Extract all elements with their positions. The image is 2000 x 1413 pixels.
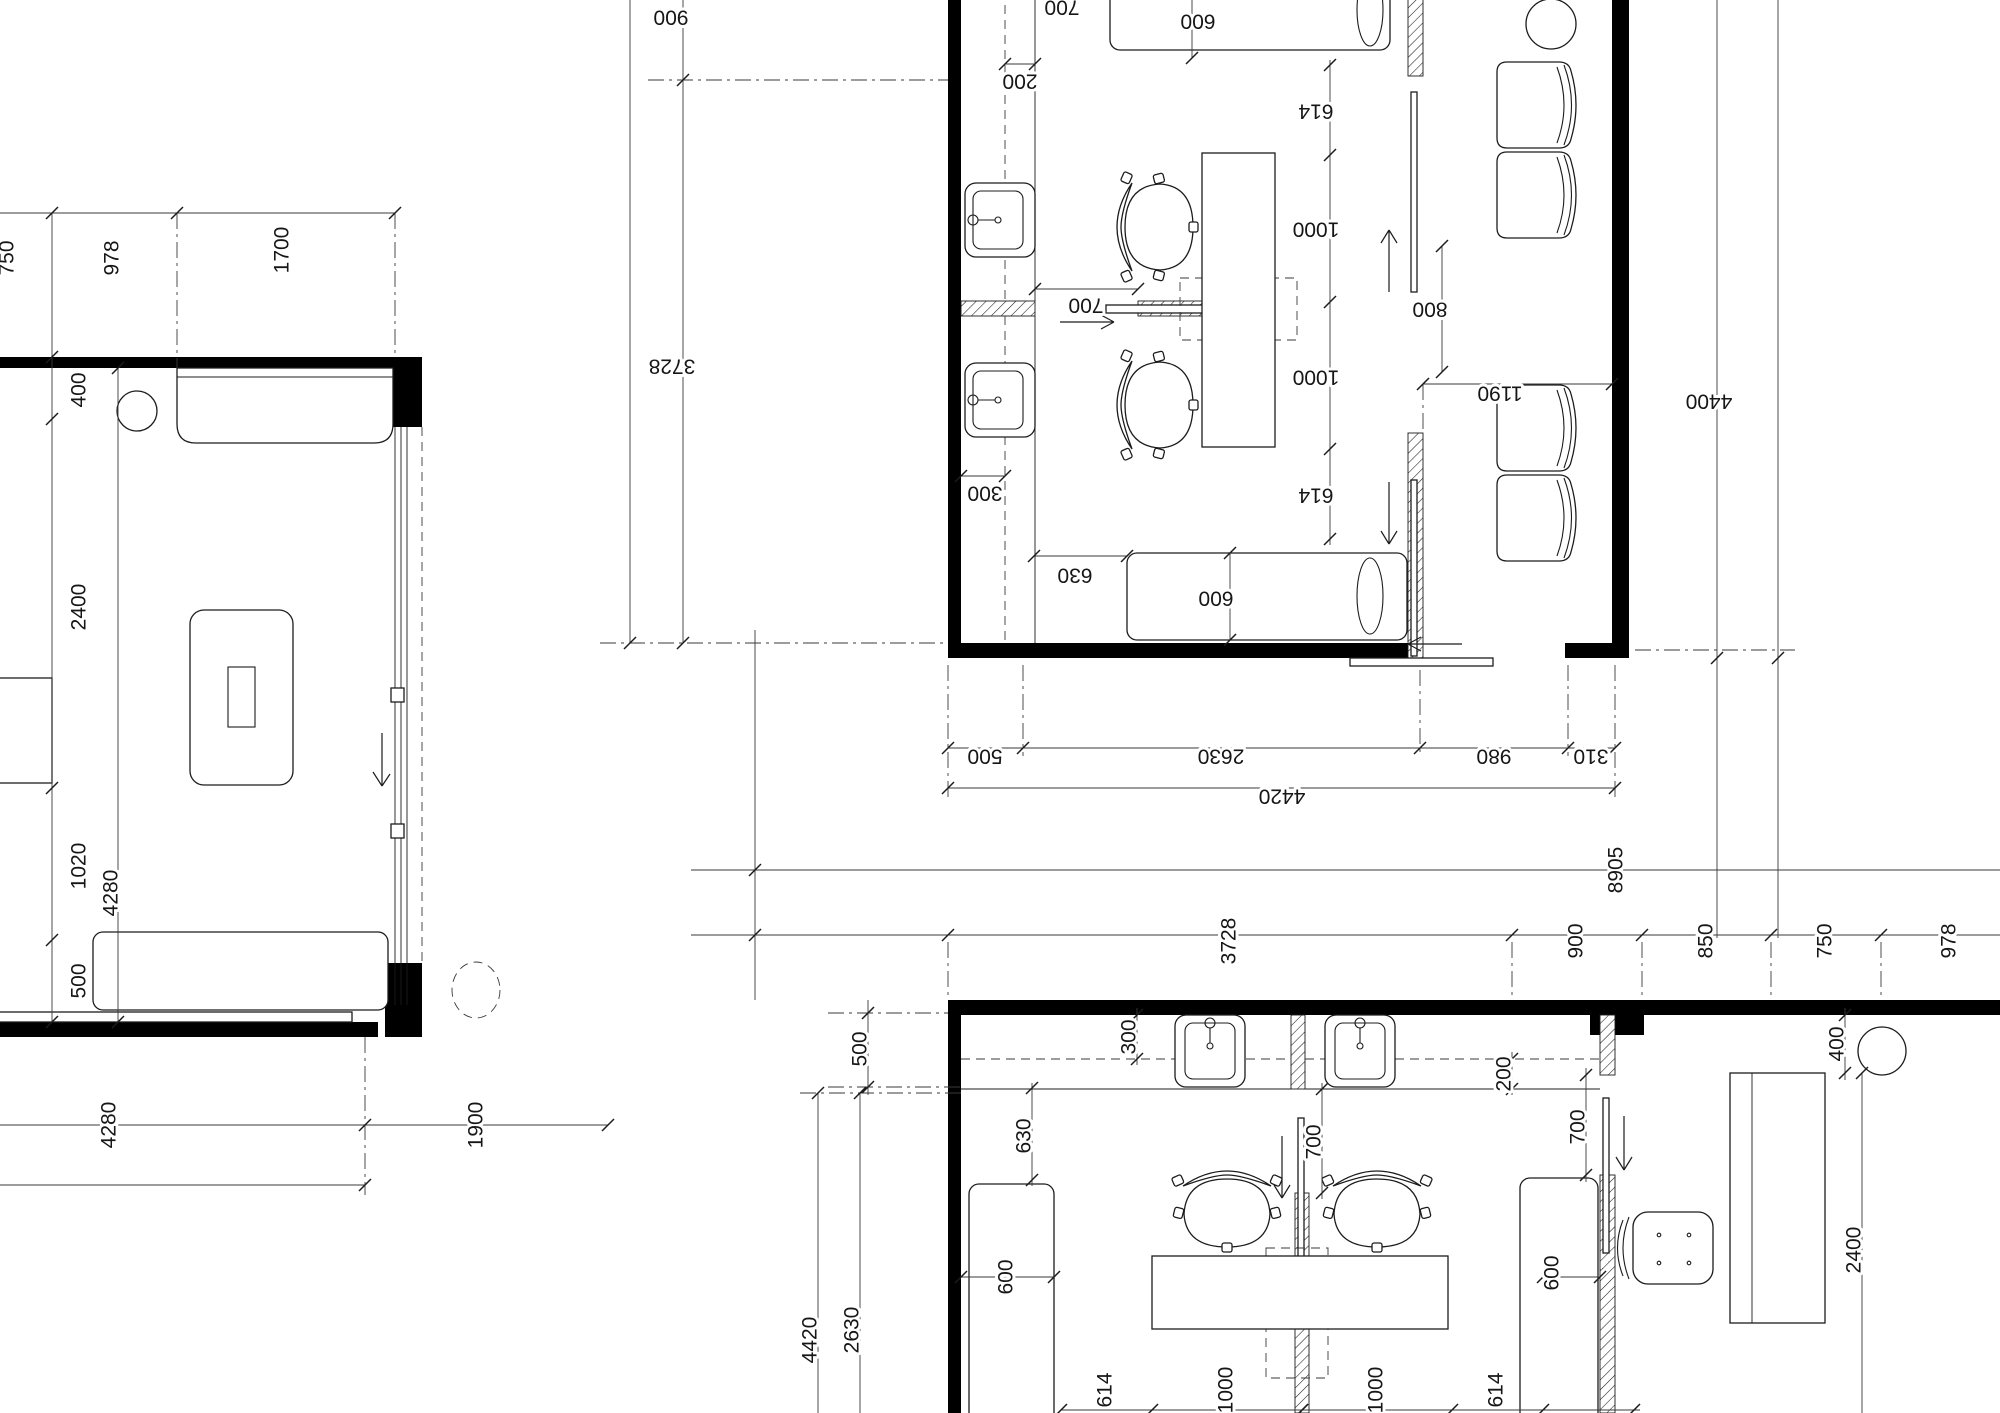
table	[190, 610, 293, 785]
dimension-label: 310	[1573, 744, 1608, 767]
dimension-label: 600	[1198, 586, 1233, 609]
partition-hatch	[1600, 1015, 1615, 1075]
dimension-label: 300	[1118, 1019, 1141, 1054]
floor-plan-canvas: 750978170040024001020500428042801900	[0, 0, 2000, 1413]
dimension-label: 2630	[841, 1307, 864, 1354]
dimension-label: 200	[1002, 69, 1037, 92]
dimension-label: 3728	[1218, 918, 1241, 965]
dimension-label: 1000	[1293, 365, 1340, 388]
dimension-label: 4280	[100, 870, 123, 917]
dimension-label: 700	[1303, 1124, 1326, 1159]
bench	[93, 932, 388, 1010]
dimension-label: 600	[1541, 1255, 1564, 1290]
dimension-label: 600	[1180, 9, 1215, 32]
bench-top	[1110, 0, 1390, 50]
dimension-label: 630	[1013, 1118, 1036, 1153]
dimension-label: 1190	[1477, 381, 1522, 404]
floor-plan-sheet: 750978170040024001020500428042801900	[0, 0, 2000, 1413]
dimension-label: 1900	[465, 1102, 488, 1149]
dimension-label: 1700	[271, 227, 294, 274]
dimension-label: 850	[1695, 923, 1718, 958]
plant-dashed-circle	[452, 962, 500, 1018]
dimension-label: 978	[101, 240, 124, 275]
dimension-label: 500	[967, 744, 1002, 767]
cabinet	[0, 678, 52, 783]
dimension-label: 1000	[1215, 1367, 1238, 1413]
dimension-label: 8905	[1605, 847, 1628, 894]
stool	[117, 391, 157, 431]
sliding-door	[1603, 1098, 1609, 1253]
dimension-label: 500	[68, 963, 91, 998]
dimension-label: 4420	[1259, 784, 1306, 807]
desk	[1730, 1073, 1825, 1323]
dimension-label: 1020	[68, 843, 91, 890]
dimension-label: 1000	[1293, 217, 1340, 240]
threshold	[1350, 658, 1493, 666]
dimension-label: 900	[653, 5, 688, 28]
plan-c: 8905372890085075097844202630500300630600…	[691, 630, 2000, 1413]
dimension-label: 300	[967, 481, 1002, 504]
dimension-label: 600	[995, 1259, 1018, 1294]
bench-bottom	[1127, 553, 1407, 640]
dimension-label: 614	[1298, 483, 1333, 506]
plan-b: 7006002009003728614100010006147003006306…	[600, 0, 1795, 938]
dimension-label: 4280	[98, 1102, 121, 1149]
dimension-label: 200	[1493, 1056, 1516, 1091]
dimension-label: 2630	[1198, 744, 1245, 767]
counter	[177, 368, 393, 443]
dim-ticks	[46, 207, 614, 1191]
sliding-door	[1411, 480, 1417, 656]
entry-arrow	[373, 733, 390, 786]
dimension-label: 614	[1485, 1372, 1508, 1407]
dimension-label: 4400	[1686, 389, 1733, 412]
partition-hatch	[1408, 0, 1423, 76]
sliding-door	[1411, 92, 1417, 292]
partition-hatch	[961, 301, 1035, 316]
dimension-label: 614	[1298, 99, 1333, 122]
dimension-label: 2400	[68, 584, 91, 631]
dimension-label: 500	[849, 1031, 872, 1066]
styling-table	[1152, 1256, 1448, 1329]
dimension-label: 614	[1094, 1372, 1117, 1407]
styling-table	[1202, 153, 1275, 447]
dimension-label: 700	[1044, 0, 1079, 18]
dimension-label: 4420	[799, 1317, 822, 1364]
partition-hatch	[1291, 1015, 1305, 1089]
dimension-label: 750	[0, 240, 19, 275]
dimension-label: 750	[1814, 923, 1837, 958]
side-table	[1526, 0, 1576, 49]
dimension-label: 400	[68, 372, 91, 407]
dimension-label: 700	[1068, 293, 1103, 316]
dimension-label: 800	[1412, 297, 1447, 320]
dimension-label: 978	[1938, 923, 1961, 958]
bench-left	[969, 1184, 1054, 1413]
dimension-label: 3728	[649, 354, 696, 377]
sliding-door	[1106, 305, 1212, 313]
dimension-label: 700	[1567, 1109, 1590, 1144]
dimension-label: 980	[1476, 744, 1511, 767]
dimension-label: 2400	[1843, 1227, 1866, 1274]
bench-right	[1520, 1178, 1598, 1413]
dimension-label: 1000	[1365, 1367, 1388, 1413]
dimension-label: 400	[1826, 1026, 1849, 1061]
dimension-label: 630	[1057, 563, 1092, 586]
dimension-label: 900	[1565, 923, 1588, 958]
plan-a: 750978170040024001020500428042801900	[0, 207, 614, 1195]
window	[391, 427, 407, 1005]
stool	[1858, 1027, 1906, 1075]
